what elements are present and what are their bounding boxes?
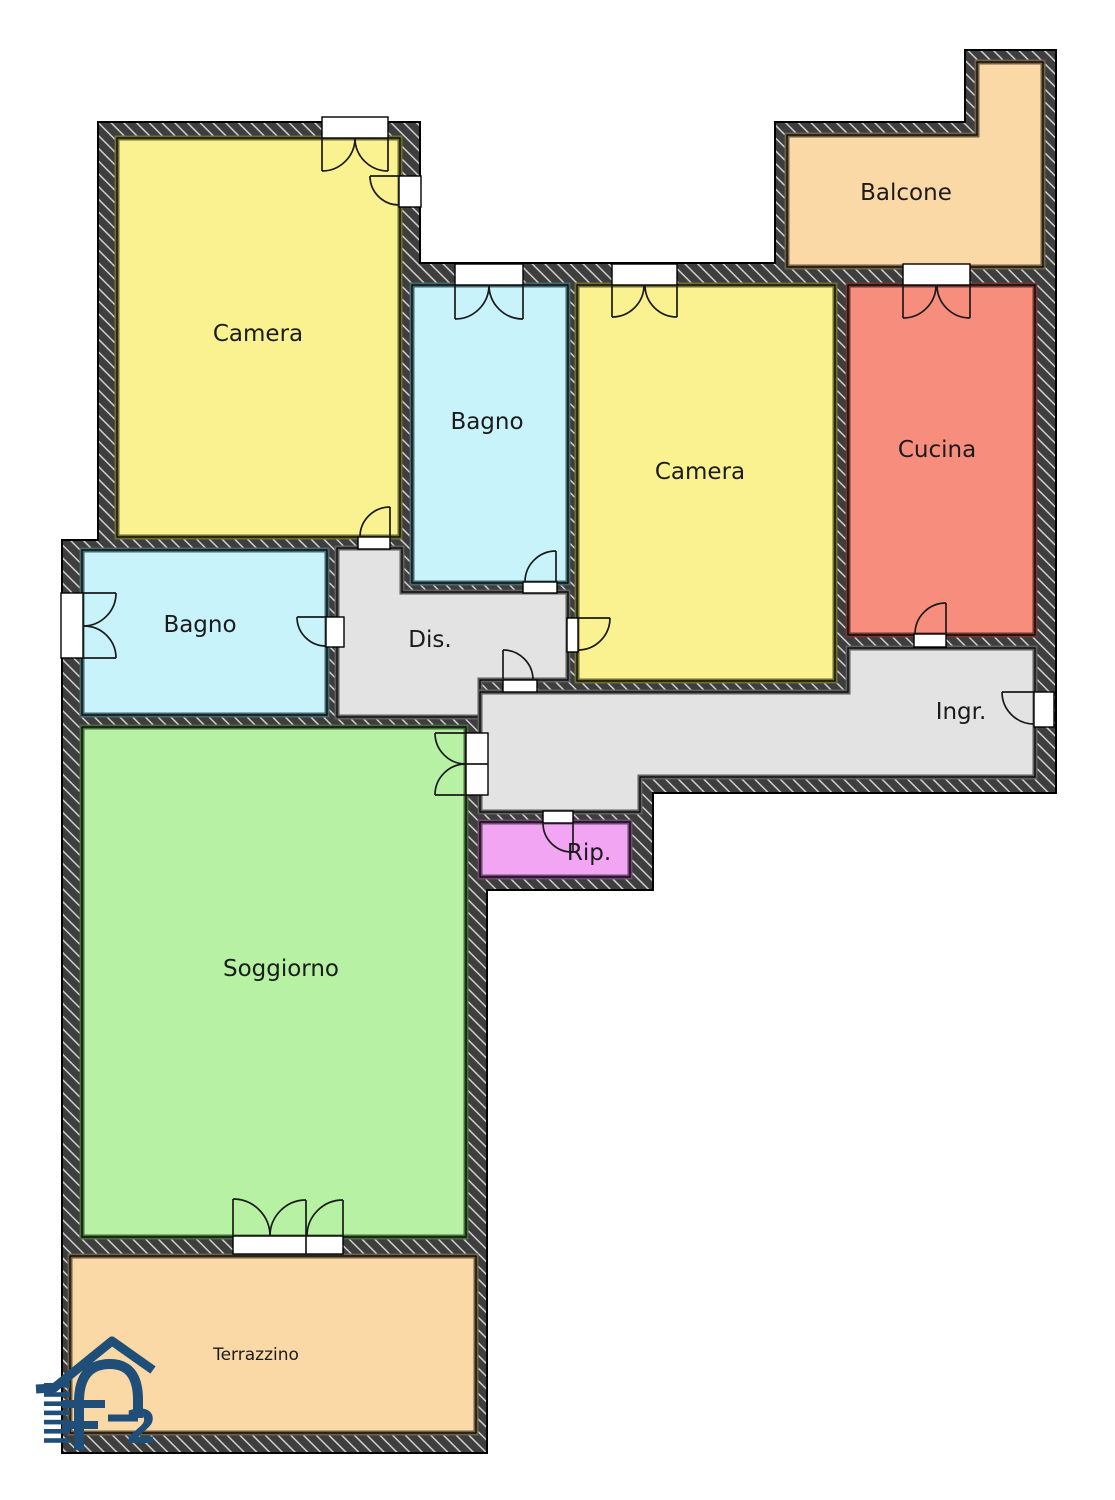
logo-louver-bar	[44, 1411, 70, 1416]
door-opening	[358, 537, 390, 549]
room-label-balcone: Balcone	[860, 180, 952, 206]
room-floor	[787, 62, 1043, 267]
window-opening	[903, 264, 970, 285]
room-label-bagno-2: Bagno	[450, 409, 523, 435]
logo-louver-bar	[44, 1392, 70, 1397]
door-opening	[503, 680, 537, 692]
room-floor	[82, 727, 466, 1237]
window-opening	[455, 264, 523, 285]
door-opening	[523, 582, 557, 593]
door-opening	[567, 618, 578, 652]
room-label-ingr: Ingr.	[936, 699, 987, 725]
door-opening	[1034, 692, 1054, 727]
room-label-camera-2: Camera	[655, 459, 745, 485]
door-opening	[233, 1236, 343, 1254]
window-opening	[612, 264, 677, 285]
door-opening	[326, 617, 344, 647]
floorplan-page: CameraBagnoCameraCucinaBalconeBagnoDis.I…	[0, 0, 1115, 1500]
door-opening	[399, 176, 421, 207]
logo-louver-bar	[44, 1429, 70, 1434]
door-opening	[543, 811, 573, 823]
room-label-soggiorno: Soggiorno	[223, 956, 339, 982]
room-label-camera-1: Camera	[213, 321, 303, 347]
room-label-dis: Dis.	[408, 627, 451, 653]
room-soggiorno	[82, 727, 466, 1237]
logo-louver-bar	[44, 1438, 70, 1443]
logo-number: 2	[125, 1400, 157, 1454]
room-label-terrazzino: Terrazzino	[212, 1345, 299, 1365]
room-label-cucina: Cucina	[898, 437, 976, 463]
floorplan-svg: CameraBagnoCameraCucinaBalconeBagnoDis.I…	[0, 0, 1115, 1500]
room-label-bagno-1: Bagno	[163, 612, 236, 638]
window-opening	[322, 117, 388, 138]
room-balcone	[787, 62, 1043, 267]
door-opening	[914, 634, 946, 647]
room-label-rip: Rip.	[567, 840, 611, 866]
window-opening	[61, 593, 83, 658]
